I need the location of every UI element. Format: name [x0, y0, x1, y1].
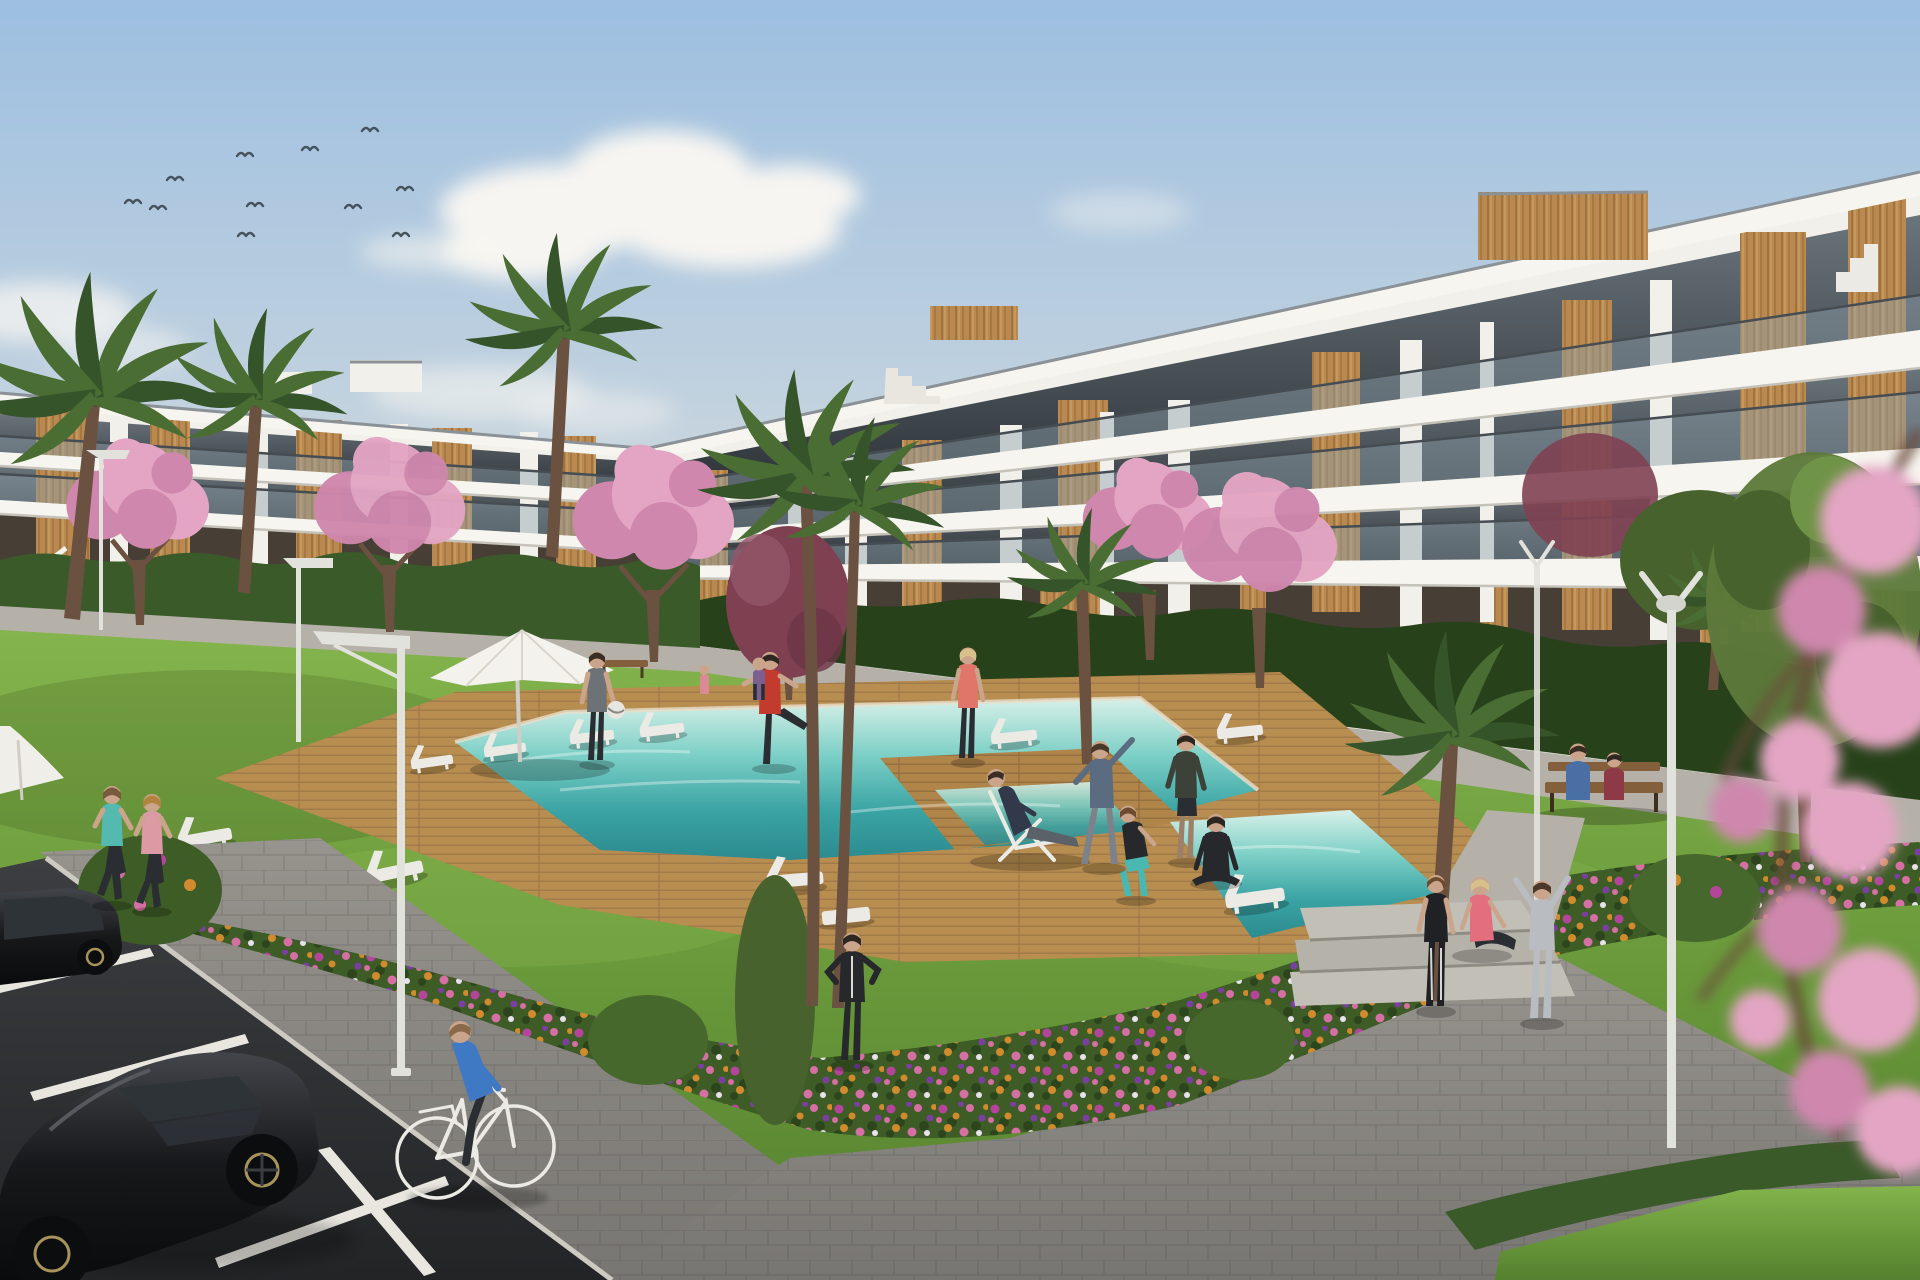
left-roof-box-2	[350, 360, 422, 392]
render-canvas	[0, 0, 1920, 1280]
shorts	[1177, 798, 1197, 816]
lamp-pole	[397, 644, 405, 1072]
sitter-blue	[1566, 761, 1590, 800]
architectural-render: Sunny 3D architectural rendering of a mo…	[0, 0, 1920, 1280]
cypress-shrub	[735, 875, 815, 1125]
walker-child	[700, 674, 709, 694]
bench-backrest	[1548, 762, 1660, 771]
sitter-maroon	[1604, 768, 1624, 801]
rooftop-wood-box	[1478, 192, 1648, 260]
rooftop-box-coping	[1478, 192, 1648, 194]
lamp-pole	[1667, 610, 1676, 1148]
rooftop-wood-box-small	[930, 306, 1018, 340]
cloud-wisp-right	[1050, 192, 1190, 232]
